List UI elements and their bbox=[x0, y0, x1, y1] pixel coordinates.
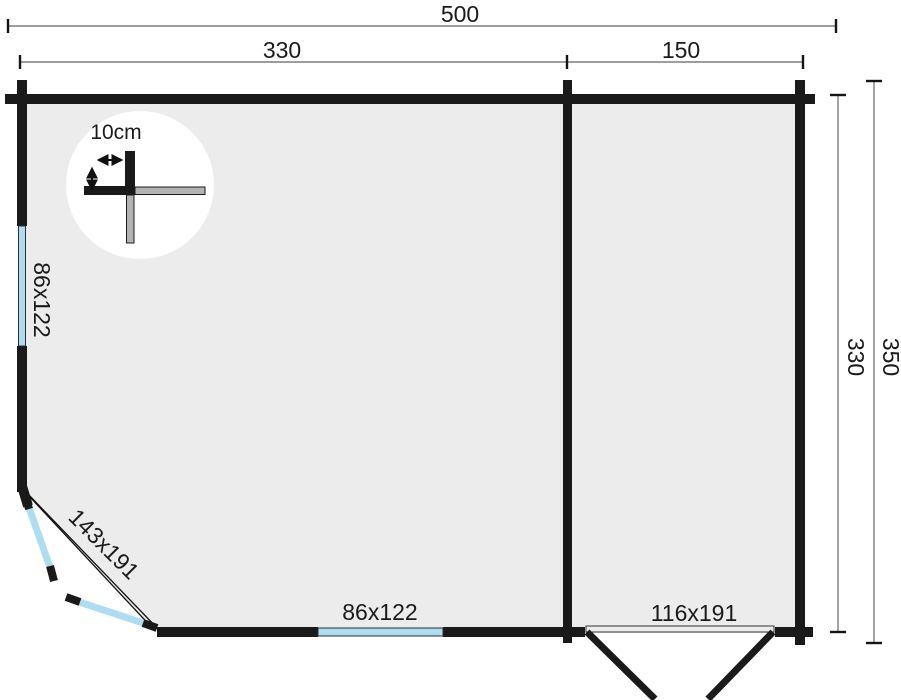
corner-door-leaf-1-cap-bottom bbox=[50, 566, 54, 581]
front-door-threshold bbox=[586, 626, 774, 632]
wall-thickness-detail: 10cm bbox=[66, 111, 214, 259]
divider-wall bbox=[563, 80, 572, 643]
left-window-label: 86x122 bbox=[29, 262, 55, 337]
front-door bbox=[586, 626, 774, 699]
front-door-leaf-left bbox=[587, 632, 655, 699]
dimension-label-330-top: 330 bbox=[263, 37, 301, 63]
detail-wall-vertical-gray bbox=[127, 195, 135, 243]
front-door-leaf-right bbox=[708, 632, 773, 699]
left-wall-upper bbox=[17, 80, 27, 226]
corner-door-leaf-1-cap-top bbox=[25, 495, 29, 509]
dimension-label-350: 350 bbox=[878, 338, 901, 376]
dimension-label-330-right: 330 bbox=[843, 338, 869, 376]
wall-thickness-label: 10cm bbox=[90, 121, 141, 144]
corner-door-leaf-2-cap-right bbox=[143, 623, 157, 628]
right-wall bbox=[795, 80, 805, 645]
left-window bbox=[19, 226, 26, 346]
front-door-label: 116x191 bbox=[651, 600, 738, 626]
dimension-total-width: 500 bbox=[8, 1, 836, 33]
left-wall-lower bbox=[17, 346, 27, 492]
dimension-label-500: 500 bbox=[441, 1, 479, 27]
top-wall bbox=[5, 94, 815, 104]
floor-plan-canvas: 10cm 50 bbox=[0, 0, 901, 700]
dimension-room-widths: 330 150 bbox=[20, 37, 803, 69]
bottom-wall-left bbox=[157, 627, 318, 637]
bottom-wall-mid bbox=[443, 627, 585, 637]
bottom-window bbox=[318, 628, 443, 636]
corner-door-leaf-2-cap-left bbox=[66, 597, 80, 602]
dimension-depths: 330 350 bbox=[830, 81, 901, 643]
bottom-wall-right-stub bbox=[775, 627, 813, 637]
floor-plan: 10cm 50 bbox=[0, 0, 901, 700]
detail-wall-horizontal-gray bbox=[135, 187, 205, 195]
dimension-label-150: 150 bbox=[662, 37, 700, 63]
bottom-window-label: 86x122 bbox=[342, 599, 417, 625]
